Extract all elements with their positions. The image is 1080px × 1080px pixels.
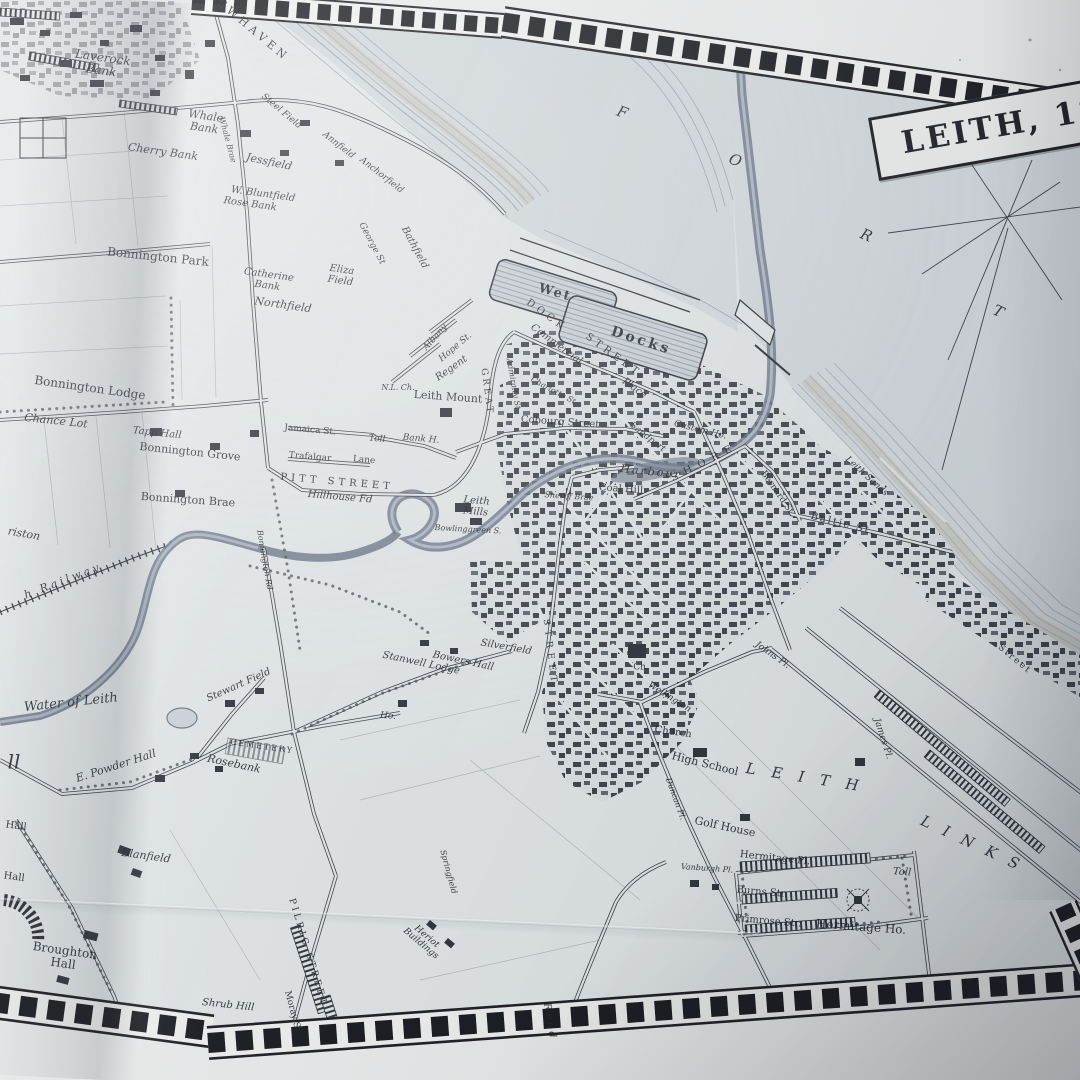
map-photo: NEWHAVENLaverock BankWhale BankWhale Bra…: [0, 0, 1080, 1080]
fold-shadow-corner: [520, 520, 1080, 1080]
